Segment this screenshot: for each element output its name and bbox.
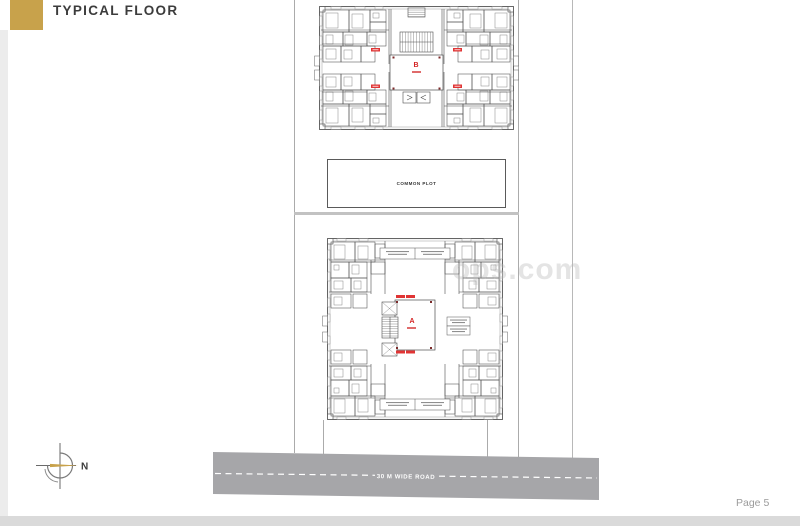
plot-divider-line xyxy=(294,212,519,215)
building-b-floor-plan: B xyxy=(319,6,514,130)
watermark: ops.com xyxy=(452,253,582,287)
plot-boundary-line-left xyxy=(294,0,295,453)
road-label: 30 M WIDE ROAD xyxy=(377,474,436,481)
bottom-edge-strip xyxy=(0,516,800,526)
road: 30 M WIDE ROAD xyxy=(213,446,599,502)
building-a-sublabel-mark xyxy=(407,327,416,329)
compass-small-arc xyxy=(45,469,58,482)
document-page: TYPICAL FLOOR B COMMON PLOT A ops.com 30… xyxy=(0,0,800,526)
north-label: N xyxy=(81,462,88,473)
north-arrow-icon xyxy=(50,464,78,467)
building-b-label: B xyxy=(406,62,426,69)
plot-boundary-line-outer xyxy=(572,0,573,459)
plot-boundary-line-right xyxy=(518,0,519,458)
common-plot-label: COMMON PLOT xyxy=(397,181,437,186)
page-title: TYPICAL FLOOR xyxy=(53,3,178,18)
common-plot-box: COMMON PLOT xyxy=(327,159,506,208)
left-edge-strip xyxy=(0,30,8,516)
building-a-label: A xyxy=(402,318,422,325)
header-accent-square xyxy=(10,0,43,30)
page-number: Page 5 xyxy=(736,497,769,509)
north-compass: N xyxy=(26,436,102,496)
building-b-sublabel-mark xyxy=(412,71,421,73)
